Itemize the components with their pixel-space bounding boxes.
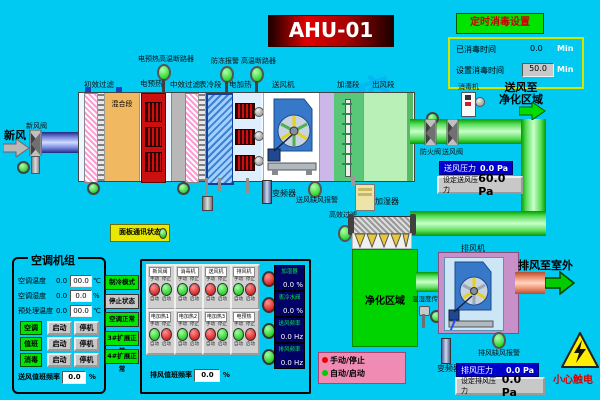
set-time-label: 设置消毒时间: [456, 65, 504, 76]
section-label: 加湿段: [337, 80, 360, 89]
fresh-air-status-light: [17, 161, 30, 174]
legend-auto-start: 自动/启动: [322, 367, 402, 380]
mini-top-left-label: 手动: [178, 277, 187, 282]
heater-pipe: [246, 178, 249, 193]
unit-row-input[interactable]: 00.0: [70, 275, 92, 287]
set-time-row: 设置消毒时间 50.0 Min: [454, 65, 576, 79]
exhaust-pressure-label: 排风压力: [461, 365, 493, 376]
start-button[interactable]: 启动: [47, 321, 72, 335]
cooling-coil-section: [206, 93, 234, 185]
indicator-light-left: [149, 328, 160, 341]
analog-value: 0.0 %: [276, 281, 303, 289]
indicator-light-right: [245, 283, 256, 296]
hmi-screen: 华东工控 AHU-01 定时消毒设置 已消毒时间 0.0 Min 设置消毒时间 …: [0, 0, 600, 400]
legend-manual-stop: 手动/停止: [322, 354, 402, 367]
mini-bottom-left-label: 自动: [234, 342, 243, 347]
mini-bottom-left-label: 自动: [234, 297, 243, 302]
analog-label: 加湿器: [276, 267, 303, 275]
mode-button[interactable]: 值班: [20, 337, 42, 351]
roof-fitting-1: [85, 87, 91, 92]
pre-filter: [84, 93, 98, 183]
mode-button[interactable]: 空调: [20, 321, 42, 335]
device-panel: 新风阀手动停止自动启动消毒机手动停止自动启动送风机手动停止自动启动排风机手动停止…: [140, 259, 311, 394]
indicator-panel[interactable]: 电加热3手动停止自动启动: [202, 309, 232, 355]
mini-top-left-label: 手动: [206, 277, 215, 282]
fresh-valve-actuator: [31, 156, 40, 174]
mini-top-left-label: 手动: [234, 322, 243, 327]
exhaust-fan-box: [438, 252, 519, 334]
mini-bottom-right-label: 启动: [218, 297, 227, 302]
indicator-panel[interactable]: 送风机手动停止自动启动: [202, 264, 232, 310]
set-time-unit: Min: [557, 65, 573, 74]
status-indicator: 制冷模式: [105, 275, 139, 290]
indicator-panel[interactable]: 电加热1手动停止自动启动: [146, 309, 176, 355]
indicator-light-right: [189, 328, 200, 341]
indicator-light-right: [161, 328, 172, 341]
stop-button[interactable]: 停机: [74, 337, 99, 351]
exhaust-duty-row: 排风值班频率 0.0 %: [150, 369, 230, 381]
indicator-label: 送风机: [205, 267, 227, 277]
analog-box: 送风频率0.0 Hz: [274, 317, 305, 343]
mini-top-right-label: 停止: [218, 277, 227, 282]
sensor-stem: [225, 81, 228, 92]
mini-top-right-label: 停止: [246, 277, 255, 282]
indicator-light-left: [205, 283, 216, 296]
comm-status-light: [159, 228, 167, 239]
disinfector-knob: [475, 97, 485, 107]
elapsed-value: 0.0: [530, 44, 543, 53]
supply-air-alarm-label: 送风缺风报警: [296, 196, 338, 205]
analog-label: 排风频率: [276, 345, 303, 353]
fresh-air-valve-icon: [29, 130, 42, 156]
mini-bottom-left-label: 自动: [150, 342, 159, 347]
indicator-label: 电预热: [233, 312, 255, 322]
indicator-light-right: [217, 283, 228, 296]
prefilter-status-light: [87, 182, 100, 195]
section-label: 表冷段: [199, 80, 222, 89]
sensor-label: 高温断路器: [241, 57, 276, 66]
humidify-strip: [319, 93, 335, 181]
analog-label: 表冷水阀: [276, 293, 303, 301]
indicator-panel[interactable]: 电加热2手动停止自动启动: [174, 309, 204, 355]
mini-top-right-label: 停止: [162, 277, 171, 282]
supply-vfd-label: 变频器: [272, 189, 296, 198]
section-label: 中效过滤: [170, 80, 200, 89]
eheater-section: [233, 93, 261, 181]
supply-pressure-label: 送风压力: [444, 163, 476, 174]
mini-bottom-right-label: 启动: [218, 342, 227, 347]
indicator-label: 消毒机: [177, 267, 199, 277]
unit-value-row: 空调温度0.000.0℃: [18, 275, 102, 287]
unit-value-row: 空调湿度0.00.0%: [18, 290, 102, 302]
ahu-unit-box: 混合段: [78, 92, 415, 182]
analog-box: 排风频率0.0 Hz: [274, 343, 305, 369]
mini-bottom-right-label: 启动: [190, 297, 199, 302]
supply-pressure-set-label: 设定送风压力: [443, 175, 478, 195]
unit-row-label: 空调湿度: [18, 290, 56, 302]
outdoor-duct: [515, 272, 545, 294]
supply-duty-unit: %: [89, 373, 96, 381]
mini-bottom-left-label: 自动: [206, 342, 215, 347]
mini-bottom-right-label: 启动: [246, 297, 255, 302]
unit-row-unit: ℃: [93, 305, 101, 317]
mid-filter: [185, 93, 199, 183]
supply-duty-row: 送风值班频率 0.0 %: [18, 371, 96, 383]
supply-pressure-set-box[interactable]: 设定送风压力 60.0 Pa: [437, 176, 523, 194]
hepa-cap-right: [410, 214, 416, 235]
mini-bottom-left-label: 自动: [178, 342, 187, 347]
indicator-panel[interactable]: 新风阀手动停止自动启动: [146, 264, 176, 310]
disinfector-device: [461, 92, 476, 117]
mini-bottom-right-label: 启动: [162, 342, 171, 347]
panel-comm-status-label: 面板通讯状态: [119, 228, 161, 236]
exhaust-vfd-device: [441, 338, 451, 364]
page-title: AHU-01: [268, 15, 394, 47]
temp-humidity-sensor-stem: [422, 314, 425, 328]
sensor-label: 防冻报警: [211, 57, 239, 66]
unit-panel: 空调机组 空调温度0.000.0℃空调湿度0.00.0%预处理温度0.000.0…: [12, 257, 106, 394]
mini-bottom-left-label: 自动: [178, 297, 187, 302]
roof-fitting-2: [116, 87, 122, 92]
analog-item: 送风频率0.0 Hz: [262, 317, 303, 342]
indicator-light-right: [161, 283, 172, 296]
start-button[interactable]: 启动: [47, 337, 72, 351]
analog-box: 加湿器0.0 %: [274, 265, 305, 291]
mini-top-left-label: 手动: [150, 277, 159, 282]
section-label: 电加热: [229, 80, 252, 89]
status-column: 制冷模式停止状态空调正常3#扩展正常4#扩展正常: [105, 275, 139, 390]
hepa-cap-left: [348, 214, 354, 235]
fresh-air-arrow-icon: [3, 139, 31, 157]
indicator-light-right: [245, 328, 256, 341]
supply-duty-input[interactable]: 0.0: [62, 371, 86, 384]
hepa-cones-icon: [352, 233, 412, 249]
elapsed-unit: Min: [557, 44, 573, 53]
legend-box: 手动/停止 自动/启动: [318, 352, 406, 384]
clean-area-label: 净化区域: [353, 292, 417, 307]
exhaust-duty-label: 排风值班频率: [150, 371, 192, 379]
mini-top-left-label: 手动: [206, 322, 215, 327]
supply-duct-bottom: [410, 211, 546, 236]
start-button[interactable]: 启动: [47, 353, 72, 367]
unit-row-label: 空调温度: [18, 275, 56, 287]
indicator-light-left: [177, 328, 188, 341]
section-label: 送风机: [272, 80, 295, 89]
mode-button[interactable]: 消毒: [20, 353, 42, 367]
midfilter-status-light: [177, 182, 190, 195]
exhaust-duty-input[interactable]: 0.0: [194, 369, 220, 382]
analog-value: 0.0 %: [276, 307, 303, 315]
supply-valve-label: 送风阀: [442, 148, 463, 157]
indicator-panel[interactable]: 消毒机手动停止自动启动: [174, 264, 204, 310]
status-indicator: 空调正常: [105, 312, 139, 327]
unit-row-value: 0.0: [56, 275, 70, 287]
panel-comm-status-button[interactable]: 面板通讯状态: [110, 224, 170, 242]
exhaust-pressure-set-value: 0.0 Pa: [502, 373, 539, 399]
mini-bottom-left-label: 自动: [150, 297, 159, 302]
mini-top-right-label: 停止: [218, 322, 227, 327]
supply-fan-icon: [264, 93, 320, 181]
fresh-air-duct: [42, 132, 78, 153]
sensor-stem: [255, 81, 258, 92]
elapsed-row: 已消毒时间 0.0 Min: [454, 44, 576, 58]
analog-label: 送风频率: [276, 319, 303, 327]
unit-row-input[interactable]: 00.0: [70, 305, 92, 317]
mini-top-left-label: 手动: [150, 322, 159, 327]
indicator-label: 电加热3: [205, 312, 227, 322]
unit-value-row: 预处理温度0.000.0℃: [18, 305, 102, 317]
analog-item: 加湿器0.0 %: [262, 265, 303, 290]
unit-row-input[interactable]: 0.0: [70, 290, 92, 302]
mini-bottom-left-label: 自动: [206, 297, 215, 302]
status-indicator: 3#扩展正常: [105, 331, 139, 346]
mixing-label: 混合段: [105, 99, 139, 109]
stop-button[interactable]: 停机: [74, 353, 99, 367]
humidify-section: [334, 93, 363, 181]
mini-top-right-label: 停止: [246, 322, 255, 327]
set-time-input[interactable]: 50.0: [522, 63, 554, 77]
mini-top-left-label: 手动: [178, 322, 187, 327]
unit-row-unit: ℃: [93, 275, 101, 287]
mini-top-right-label: 停止: [162, 322, 171, 327]
fire-valve-icon: [424, 119, 437, 145]
humidifier-label: 加湿器: [375, 197, 399, 206]
to-outdoor-arrow-icon: [545, 271, 577, 295]
clean-area-box: 净化区域: [352, 249, 418, 347]
preheat-section: [141, 93, 166, 183]
analog-value: 0.0 Hz: [276, 333, 303, 341]
indicator-panel[interactable]: 电预热手动停止自动启动: [230, 309, 260, 355]
section-label: 出风段: [372, 80, 395, 89]
outlet-section: [363, 93, 408, 181]
indicator-light-right: [189, 283, 200, 296]
indicator-light-left: [233, 328, 244, 341]
filter-comb-2: [198, 93, 206, 181]
unit-row-value: 0.0: [56, 290, 70, 302]
humidifier-device: [355, 184, 375, 211]
exhaust-air-alarm-light: [492, 332, 506, 349]
supply-fan-section: [263, 93, 320, 181]
mid-gray-section: [171, 93, 185, 181]
unit-row-value: 0.0: [56, 305, 70, 317]
unit-row-unit: %: [93, 290, 100, 302]
disinfect-settings-button[interactable]: 定时消毒设置: [456, 13, 544, 34]
indicator-light-right: [217, 328, 228, 341]
exhaust-pressure-set-label: 设定排风压力: [461, 376, 502, 396]
mini-top-right-label: 停止: [190, 322, 199, 327]
exhaust-fan-icon: [447, 258, 501, 330]
indicator-label: 新风阀: [149, 267, 171, 277]
indicator-light-left: [177, 283, 188, 296]
analog-item: 排风频率0.0 Hz: [262, 343, 303, 368]
analog-item: 表冷水阀0.0 %: [262, 291, 303, 316]
fire-valve-label: 防火阀: [420, 148, 441, 157]
indicator-light-left: [233, 283, 244, 296]
mini-bottom-right-label: 启动: [162, 297, 171, 302]
stop-button[interactable]: 停机: [74, 321, 99, 335]
unit-panel-title: 空调机组: [28, 252, 78, 268]
to-clean-arrow-icon: [519, 102, 547, 120]
indicator-label: 电加热2: [177, 312, 199, 322]
electric-warning-icon: [561, 332, 599, 370]
cooling-pipe-2: [218, 178, 221, 192]
sensor-label: 电预热高温断路器: [138, 55, 194, 64]
supply-valve-icon: [446, 119, 459, 145]
mixing-section: 混合段: [104, 93, 140, 181]
supply-duty-label: 送风值班频率: [18, 373, 60, 381]
mini-bottom-right-label: 启动: [190, 342, 199, 347]
exhaust-pressure-set-box[interactable]: 设定排风压力 0.0 Pa: [455, 377, 545, 395]
analog-box: 表冷水阀0.0 %: [274, 291, 305, 317]
unit-row-label: 预处理温度: [18, 305, 56, 317]
status-indicator: 4#扩展正常: [105, 349, 139, 364]
section-label: 电预热: [140, 79, 163, 88]
status-indicator: 停止状态: [105, 294, 139, 309]
exhaust-duty-unit: %: [223, 371, 230, 379]
mini-top-right-label: 停止: [190, 277, 199, 282]
supply-pressure-set-value: 60.0 Pa: [478, 172, 517, 198]
indicator-light-left: [205, 328, 216, 341]
indicator-label: 排风机: [233, 267, 255, 277]
indicator-label: 电加热1: [149, 312, 171, 322]
elapsed-label: 已消毒时间: [456, 44, 496, 55]
cooling-pipe-1: [205, 178, 208, 198]
mini-bottom-right-label: 启动: [246, 342, 255, 347]
disinfector-label: 消毒机: [458, 83, 479, 92]
electric-warning-label: 小心触电: [553, 371, 593, 386]
mini-top-left-label: 手动: [234, 277, 243, 282]
exhaust-air-alarm-label: 排风缺风报警: [478, 349, 520, 358]
indicator-panel[interactable]: 排风机手动停止自动启动: [230, 264, 260, 310]
indicator-light-left: [149, 283, 160, 296]
analog-value: 0.0 Hz: [276, 359, 303, 367]
supply-vfd-device: [262, 180, 272, 204]
cooling-valve: [202, 196, 213, 211]
